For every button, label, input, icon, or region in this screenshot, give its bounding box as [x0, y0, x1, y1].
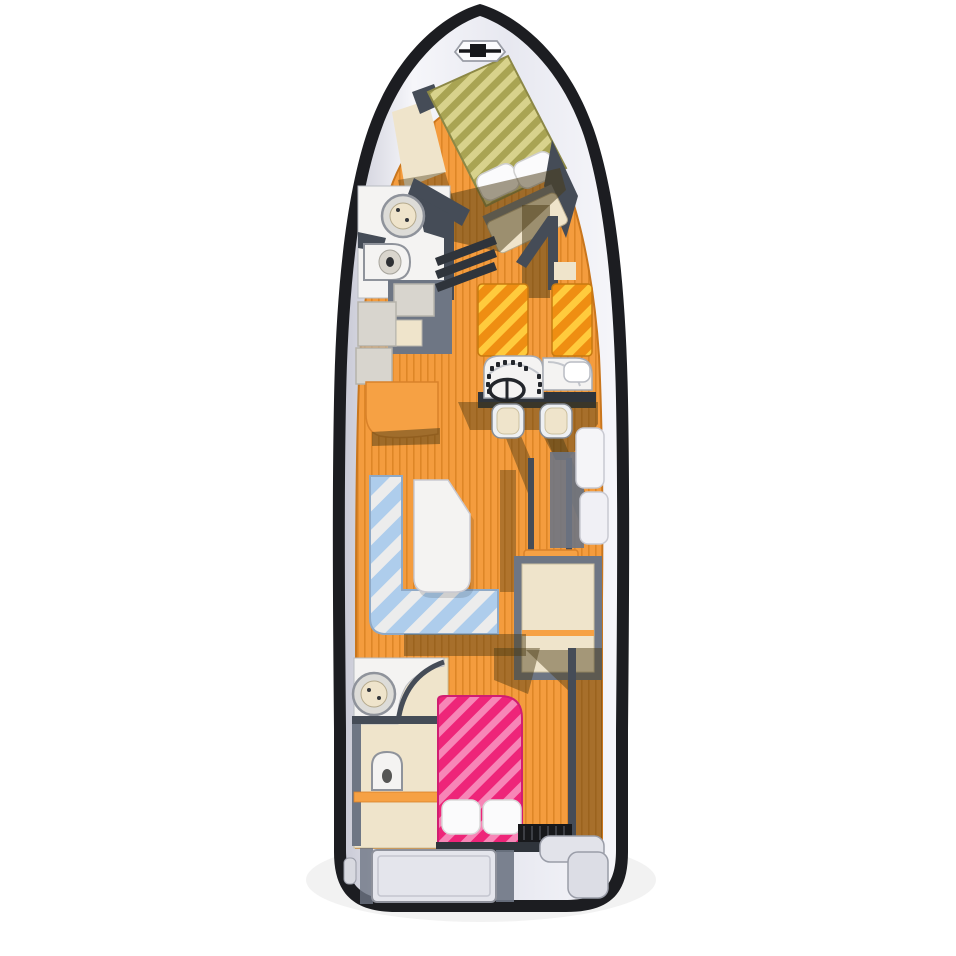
forward-sink-basin [390, 203, 416, 229]
aft-berth-pillow-left [442, 800, 480, 834]
galley-tile-2 [358, 302, 396, 346]
galley-tile-3 [356, 348, 392, 384]
stern-wall-right [496, 850, 514, 902]
walkway-panel-upper [576, 428, 604, 488]
forward-sink-tap [396, 208, 400, 212]
shadow-sofa-right [500, 470, 516, 592]
stern-fitting [344, 858, 356, 884]
navigator-headrest [564, 362, 590, 382]
sunpad-starboard [552, 284, 592, 356]
aft-toilet-drain [382, 769, 392, 783]
forward-sink-drain [405, 218, 409, 222]
aft-head-wall-left [352, 724, 361, 846]
helm-station [478, 356, 596, 408]
aft-sink-tap [367, 688, 371, 692]
aft-head-shelf [354, 792, 442, 802]
aft-sink-drain [377, 696, 381, 700]
aft-sink-basin [361, 681, 387, 707]
galley-tile-1 [394, 284, 434, 316]
starboard-bench-trim [522, 630, 594, 636]
shadow-aft-right [576, 648, 602, 845]
helm-seat-left [492, 404, 524, 438]
sunpad-port [478, 284, 528, 356]
chart-ledge [554, 262, 576, 280]
forward-toilet-drain [386, 257, 394, 267]
galley-tile-4 [396, 320, 422, 346]
aft-cabin-wall-right [568, 648, 576, 848]
bow-cleat-icon [455, 41, 505, 61]
aft-head [352, 658, 448, 848]
yacht-floorplan-stage [0, 0, 956, 956]
helm-seat-right [540, 404, 572, 438]
aft-head-divider [352, 716, 442, 724]
yacht-floorplan-svg [0, 0, 956, 956]
aft-berth-pillow-right [483, 800, 521, 834]
engine-hatch [372, 850, 496, 902]
walkway-panel-lower [580, 492, 608, 544]
aft-steps-rail-left [528, 458, 534, 558]
stern-step-lower [568, 852, 608, 898]
